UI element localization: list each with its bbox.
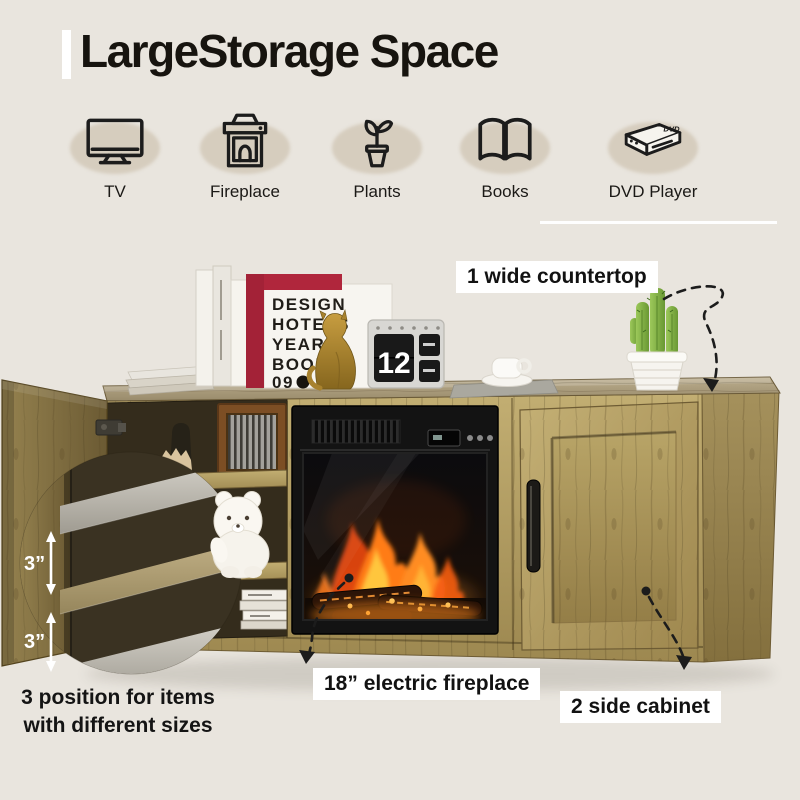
feature-label: Books [440,182,570,202]
feature-label: TV [50,182,180,202]
feature-label: Plants [312,182,442,202]
title-accent-bar [62,30,71,79]
plant-icon [344,108,410,174]
tv-icon [82,108,148,174]
feature-dvd-player: DVD DVD Player [588,108,718,202]
standing-books [196,266,251,386]
radio [218,404,286,478]
dvd-player-icon: DVD [620,108,686,174]
red-book-spine [246,274,264,388]
gap-label-top: 3” [24,553,45,575]
arrow-dot-fireplace [345,574,354,583]
shelf-note-line2: with different sizes [2,712,234,740]
infographic-canvas: DESIGN HOTELS YEAR BOOK 09 [0,0,800,800]
book-icon [472,108,538,174]
annotation-shelf-positions: 3 position for items with different size… [2,684,234,739]
door-hinge [96,420,126,435]
book-title-line: DESIGN [272,295,346,314]
feature-plants: Plants [312,108,442,202]
feature-tv: TV [50,108,180,202]
fireplace-icon [212,108,278,174]
shelf-note-line1: 3 position for items [2,684,234,712]
calendar-day: 12 [377,347,410,380]
feature-label: DVD Player [588,182,718,202]
annotation-fireplace: 18” electric fireplace [313,668,540,700]
right-cabinet-door [520,402,698,650]
book-title-line: YEAR [272,335,325,354]
flip-calendar: 12 [368,320,444,388]
divider-line [540,221,777,224]
gap-label-bottom: 3” [24,631,45,653]
door-handle [527,480,540,572]
annotation-countertop: 1 wide countertop [456,261,658,293]
arrow-dot-cabinet [642,587,651,596]
inset-magnifier: 3” 3” [18,450,246,696]
dvd-badge: DVD [663,125,680,134]
feature-fireplace: Fireplace [180,108,310,202]
feature-books: Books [440,108,570,202]
stacked-books [240,590,287,629]
right-side-panel [702,391,779,662]
fireplace-insert [292,406,498,634]
cactus-plant [627,288,687,390]
book-title-line: 09 [272,373,294,392]
annotation-side-cabinet: 2 side cabinet [560,691,721,723]
page-title: LargeStorage Space [80,24,498,78]
feature-label: Fireplace [180,182,310,202]
coffee-cup [450,358,558,398]
